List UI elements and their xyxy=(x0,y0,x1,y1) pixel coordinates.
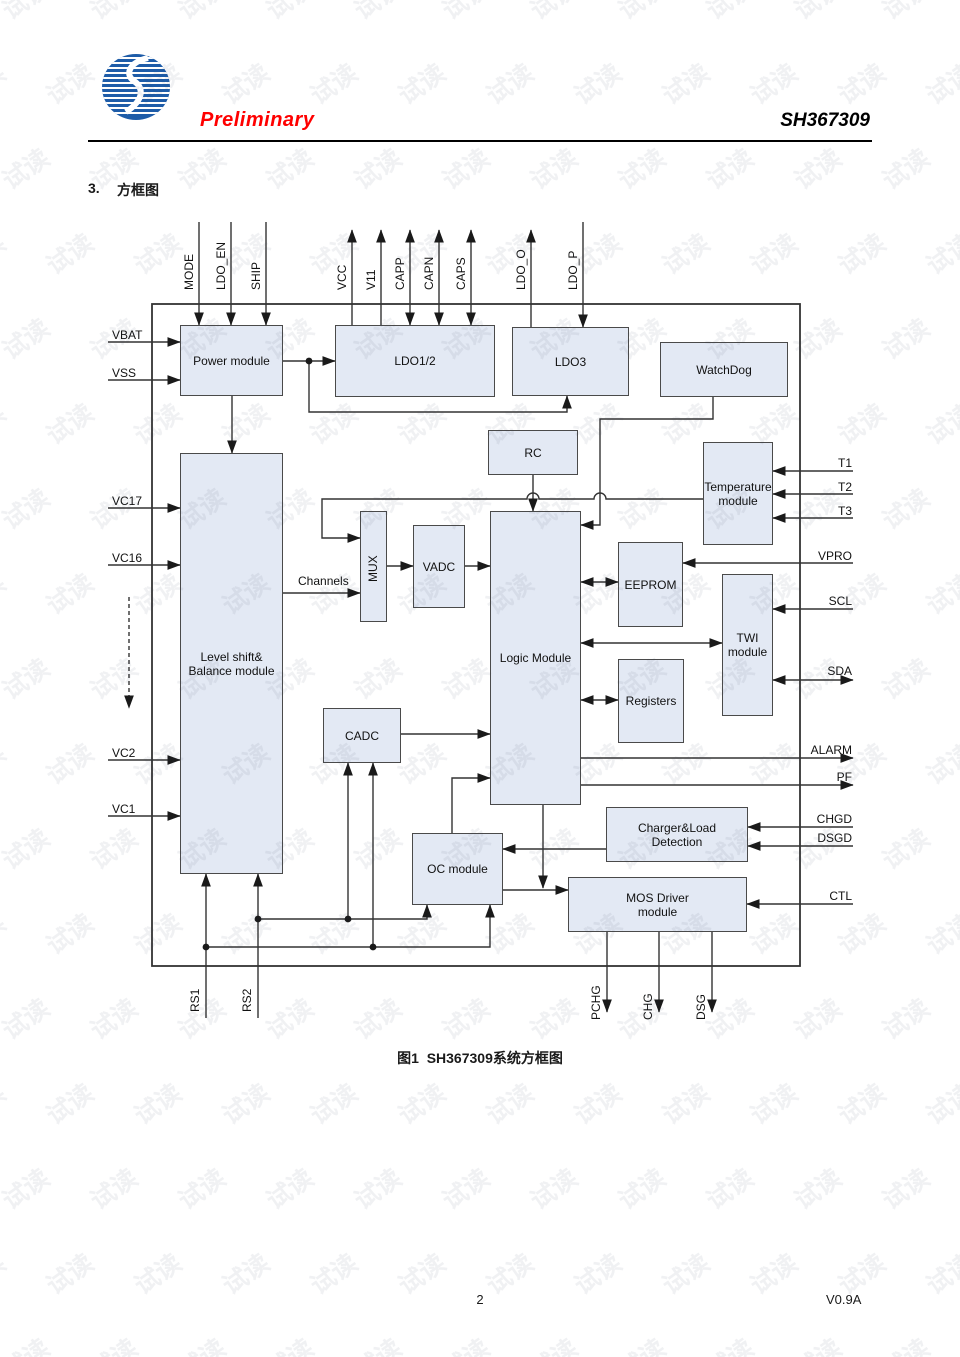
block-label: Logic Module xyxy=(500,651,571,665)
signal-label-vbat: VBAT xyxy=(112,328,174,342)
block-label: VADC xyxy=(423,560,455,574)
block-label: WatchDog xyxy=(696,363,752,377)
signal-label-mode: MODE xyxy=(183,254,196,290)
block-registers: Registers xyxy=(618,659,684,743)
signal-label-rs2: RS2 xyxy=(241,989,254,1012)
block-diagram-wiring xyxy=(0,0,960,1357)
signal-label-chgd: CHGD xyxy=(800,812,852,826)
block-logic-module: Logic Module xyxy=(490,511,581,805)
block-label: Temperature module xyxy=(704,480,772,508)
signal-label-pf: PF xyxy=(800,770,852,784)
signal-label-vc2: VC2 xyxy=(112,746,174,760)
signal-label-chg: CHG xyxy=(642,993,655,1020)
block-vadc: VADC xyxy=(413,525,465,608)
block-twi-module: TWI module xyxy=(722,574,773,716)
block-label: Charger&Load Detection xyxy=(622,821,732,849)
block-label: Level shift& Balance module xyxy=(186,650,278,678)
signal-label-ship: SHIP xyxy=(250,262,263,290)
signal-label-t1: T1 xyxy=(800,456,852,470)
block-power-module: Power module xyxy=(180,325,283,396)
block-label: EEPROM xyxy=(624,578,676,592)
block-oc-module: OC module xyxy=(412,833,503,905)
signal-label-ctl: CTL xyxy=(800,889,852,903)
block-mos-driver-module: MOS Driver module xyxy=(568,877,747,932)
signal-label-scl: SCL xyxy=(800,594,852,608)
signal-label-pchg: PCHG xyxy=(590,985,603,1020)
block-watchdog: WatchDog xyxy=(660,342,788,397)
signal-label-v11: V11 xyxy=(365,270,378,290)
signal-label-ldo-o: LDO_O xyxy=(515,249,528,290)
signal-label-ldo-p: LDO_P xyxy=(567,251,580,290)
block-label: OC module xyxy=(427,862,488,876)
signal-label-vss: VSS xyxy=(112,366,174,380)
signal-label-capp: CAPP xyxy=(394,257,407,290)
company-logo-icon xyxy=(100,52,176,122)
block-rc: RC xyxy=(488,430,578,475)
signal-label-alarm: ALARM xyxy=(800,743,852,757)
block-label: RC xyxy=(524,446,541,460)
channels-label: Channels xyxy=(298,574,349,588)
signal-label-capn: CAPN xyxy=(423,257,436,290)
block-ldo3: LDO3 xyxy=(512,327,629,396)
block-eeprom: EEPROM xyxy=(618,542,683,627)
signal-label-vc16: VC16 xyxy=(112,551,174,565)
block-label: Registers xyxy=(626,694,677,708)
signal-label-ldo-en: LDO_EN xyxy=(215,242,228,290)
signal-label-sda: SDA xyxy=(800,664,852,678)
block-label: Power module xyxy=(193,354,270,368)
block-ldo12: LDO1/2 xyxy=(335,325,495,397)
signal-label-t3: T3 xyxy=(800,504,852,518)
block-charger-load-detection: Charger&Load Detection xyxy=(606,807,748,862)
block-cadc: CADC xyxy=(323,708,401,763)
block-label-mux: MUX xyxy=(367,555,380,582)
block-label: MOS Driver module xyxy=(615,891,701,919)
block-label: CADC xyxy=(345,729,379,743)
datasheet-page: Preliminary SH367309 3. 方框图 xyxy=(0,0,960,1357)
signal-label-dsg: DSG xyxy=(695,994,708,1020)
block-level-shift-balance: Level shift& Balance module xyxy=(180,453,283,874)
signal-label-t2: T2 xyxy=(800,480,852,494)
signal-label-vc1: VC1 xyxy=(112,802,174,816)
signal-label-rs1: RS1 xyxy=(189,989,202,1012)
block-label: LDO1/2 xyxy=(394,354,435,368)
signal-label-vc17: VC17 xyxy=(112,494,174,508)
signal-label-caps: CAPS xyxy=(455,257,468,290)
block-temperature-module: Temperature module xyxy=(703,442,773,545)
block-label: LDO3 xyxy=(555,355,586,369)
block-label: TWI module xyxy=(725,631,771,659)
signal-label-dsgd: DSGD xyxy=(800,831,852,845)
signal-label-vpro: VPRO xyxy=(800,549,852,563)
signal-label-vcc: VCC xyxy=(336,265,349,290)
